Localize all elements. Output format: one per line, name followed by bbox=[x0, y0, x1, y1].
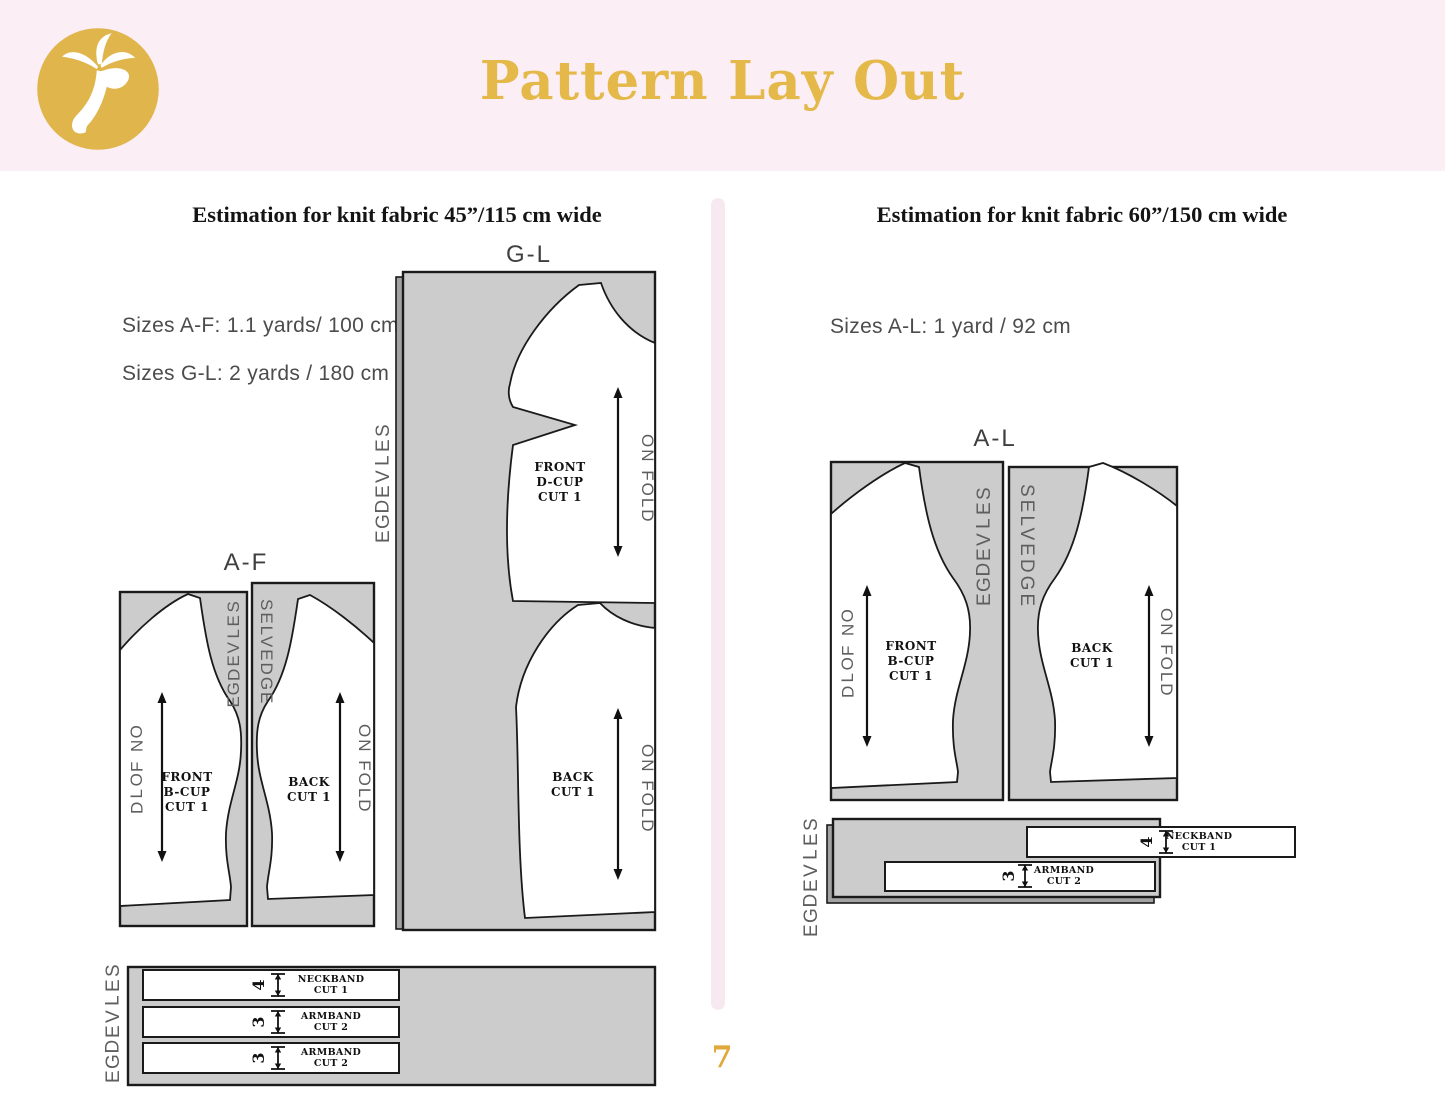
af-fabric-diagram: FRONT B-CUP CUT 1 BACK CUT 1 bbox=[118, 581, 378, 930]
al-back-label-line2: CUT 1 bbox=[1070, 656, 1114, 670]
page-number: 7 bbox=[697, 1040, 747, 1075]
column-divider bbox=[711, 198, 725, 1010]
al-selvedge-left-label: SELVEDGE bbox=[972, 486, 996, 608]
left-band-strips-diagram bbox=[118, 960, 663, 1092]
gl-back-label-line1: BACK bbox=[552, 770, 594, 784]
armband-strip-label: ARMBAND CUT 2 bbox=[1018, 865, 1110, 887]
al-back-onfold-label: ON FOLD bbox=[1152, 608, 1176, 698]
right-strips-selvedge-label: SELVEDGE bbox=[799, 817, 823, 939]
al-front-onfold-label: ON FOLD bbox=[836, 608, 860, 697]
af-front-label-line2: B-CUP bbox=[164, 785, 211, 799]
al-front-label-line3: CUT 1 bbox=[889, 669, 933, 683]
strip-label-line: ARMBAND bbox=[285, 1011, 377, 1022]
neckband-strip-label: NECKBAND CUT 1 bbox=[1153, 831, 1245, 853]
af-front-label-line1: FRONT bbox=[161, 770, 212, 784]
gl-front-label-line1: FRONT bbox=[534, 460, 585, 474]
strip-label-line: NECKBAND bbox=[285, 974, 377, 985]
al-diagram-label: A-L bbox=[935, 425, 1055, 453]
af-diagram-label: A-F bbox=[186, 549, 306, 577]
strip-label-line: NECKBAND bbox=[1153, 831, 1245, 842]
armband-strip-label: ARMBAND CUT 2 bbox=[285, 1047, 377, 1069]
af-front-label-line3: CUT 1 bbox=[165, 800, 209, 814]
al-front-label-line1: FRONT bbox=[885, 639, 936, 653]
af-back-label-line2: CUT 1 bbox=[287, 790, 331, 804]
strip-label-line: ARMBAND bbox=[285, 1047, 377, 1058]
pattern-layout-page: Pattern Lay Out Estimation for knit fabr… bbox=[0, 0, 1445, 1117]
header-band: Pattern Lay Out bbox=[0, 0, 1445, 171]
af-front-onfold-label: ON FOLD bbox=[125, 724, 149, 813]
gl-back-label-line2: CUT 1 bbox=[551, 785, 595, 799]
gl-selvedge-label: SELVEDGE bbox=[371, 423, 395, 545]
al-selvedge-right-label: SELVEDGE bbox=[1013, 484, 1037, 609]
gl-front-onfold-label: ON FOLD bbox=[633, 434, 657, 524]
gl-front-label-line2: D-CUP bbox=[536, 475, 583, 489]
strip-label-line: CUT 1 bbox=[285, 985, 377, 996]
page-title: Pattern Lay Out bbox=[0, 50, 1445, 112]
left-column-heading: Estimation for knit fabric 45”/115 cm wi… bbox=[97, 202, 697, 228]
left-strips-selvedge-label: SELVEDGE bbox=[101, 963, 125, 1085]
strip-label-line: ARMBAND bbox=[1018, 865, 1110, 876]
left-size-note-2: Sizes G-L: 2 yards / 180 cm bbox=[122, 362, 389, 386]
al-fabric-diagram: FRONT B-CUP CUT 1 BACK CUT 1 bbox=[829, 450, 1181, 802]
af-back-onfold-label: ON FOLD bbox=[350, 724, 374, 814]
left-size-note-1: Sizes A-F: 1.1 yards/ 100 cm bbox=[122, 314, 399, 338]
gl-fabric-diagram: FRONT D-CUP CUT 1 BACK CUT 1 bbox=[388, 264, 664, 938]
al-back-label-line1: BACK bbox=[1071, 641, 1113, 655]
strip-label-line: CUT 2 bbox=[1018, 876, 1110, 887]
neckband-width-number: 4 bbox=[244, 971, 272, 999]
armband-width-number: 3 bbox=[244, 1044, 272, 1072]
strip-label-line: CUT 1 bbox=[1153, 842, 1245, 853]
strip-label-line: CUT 2 bbox=[285, 1022, 377, 1033]
armband-width-number: 3 bbox=[244, 1008, 272, 1036]
armband-strip-label: ARMBAND CUT 2 bbox=[285, 1011, 377, 1033]
al-front-label-line2: B-CUP bbox=[888, 654, 935, 668]
gl-front-label-line3: CUT 1 bbox=[538, 490, 582, 504]
right-column-heading: Estimation for knit fabric 60”/150 cm wi… bbox=[782, 202, 1382, 228]
gl-back-onfold-label: ON FOLD bbox=[633, 744, 657, 834]
strip-label-line: CUT 2 bbox=[285, 1058, 377, 1069]
right-size-note-1: Sizes A-L: 1 yard / 92 cm bbox=[830, 315, 1071, 339]
af-selvedge-left-label: SELVEDGE bbox=[222, 599, 246, 708]
af-back-label-line1: BACK bbox=[288, 775, 330, 789]
neckband-strip-label: NECKBAND CUT 1 bbox=[285, 974, 377, 996]
af-selvedge-right-label: SELVEDGE bbox=[252, 599, 276, 705]
